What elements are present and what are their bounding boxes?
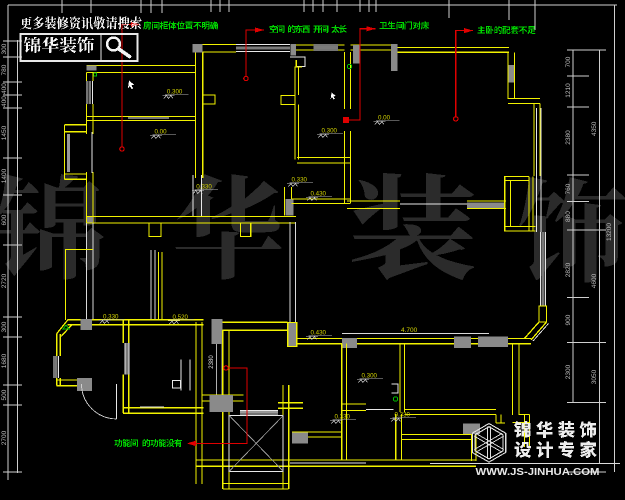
svg-text:WWW.JS-JINHUA.COM: WWW.JS-JINHUA.COM [476,466,600,478]
svg-text:4.700: 4.700 [401,327,418,334]
svg-text:300: 300 [1,43,8,54]
svg-text:1450: 1450 [1,125,8,140]
svg-text:2820: 2820 [565,262,572,277]
svg-text:13200: 13200 [606,223,613,241]
svg-text:900: 900 [565,314,572,325]
svg-text:400: 400 [1,96,8,107]
svg-text:700: 700 [565,56,572,67]
svg-text:780: 780 [1,64,8,75]
svg-text:400: 400 [1,83,8,94]
svg-text:300: 300 [1,321,8,332]
svg-text:3050: 3050 [591,369,598,384]
svg-text:1400: 1400 [1,168,8,183]
svg-text:760: 760 [565,183,572,194]
svg-text:500: 500 [1,389,8,400]
svg-text:1210: 1210 [565,83,572,98]
svg-text:600: 600 [1,214,8,225]
svg-text:1680: 1680 [1,353,8,368]
svg-text:4600: 4600 [591,273,598,288]
svg-text:2380: 2380 [565,130,572,145]
svg-text:4350: 4350 [591,121,598,136]
svg-text:2300: 2300 [565,364,572,379]
svg-text:2380: 2380 [209,355,215,369]
svg-text:880: 880 [565,211,572,222]
svg-text:2700: 2700 [1,430,8,445]
svg-text:2720: 2720 [1,273,8,288]
